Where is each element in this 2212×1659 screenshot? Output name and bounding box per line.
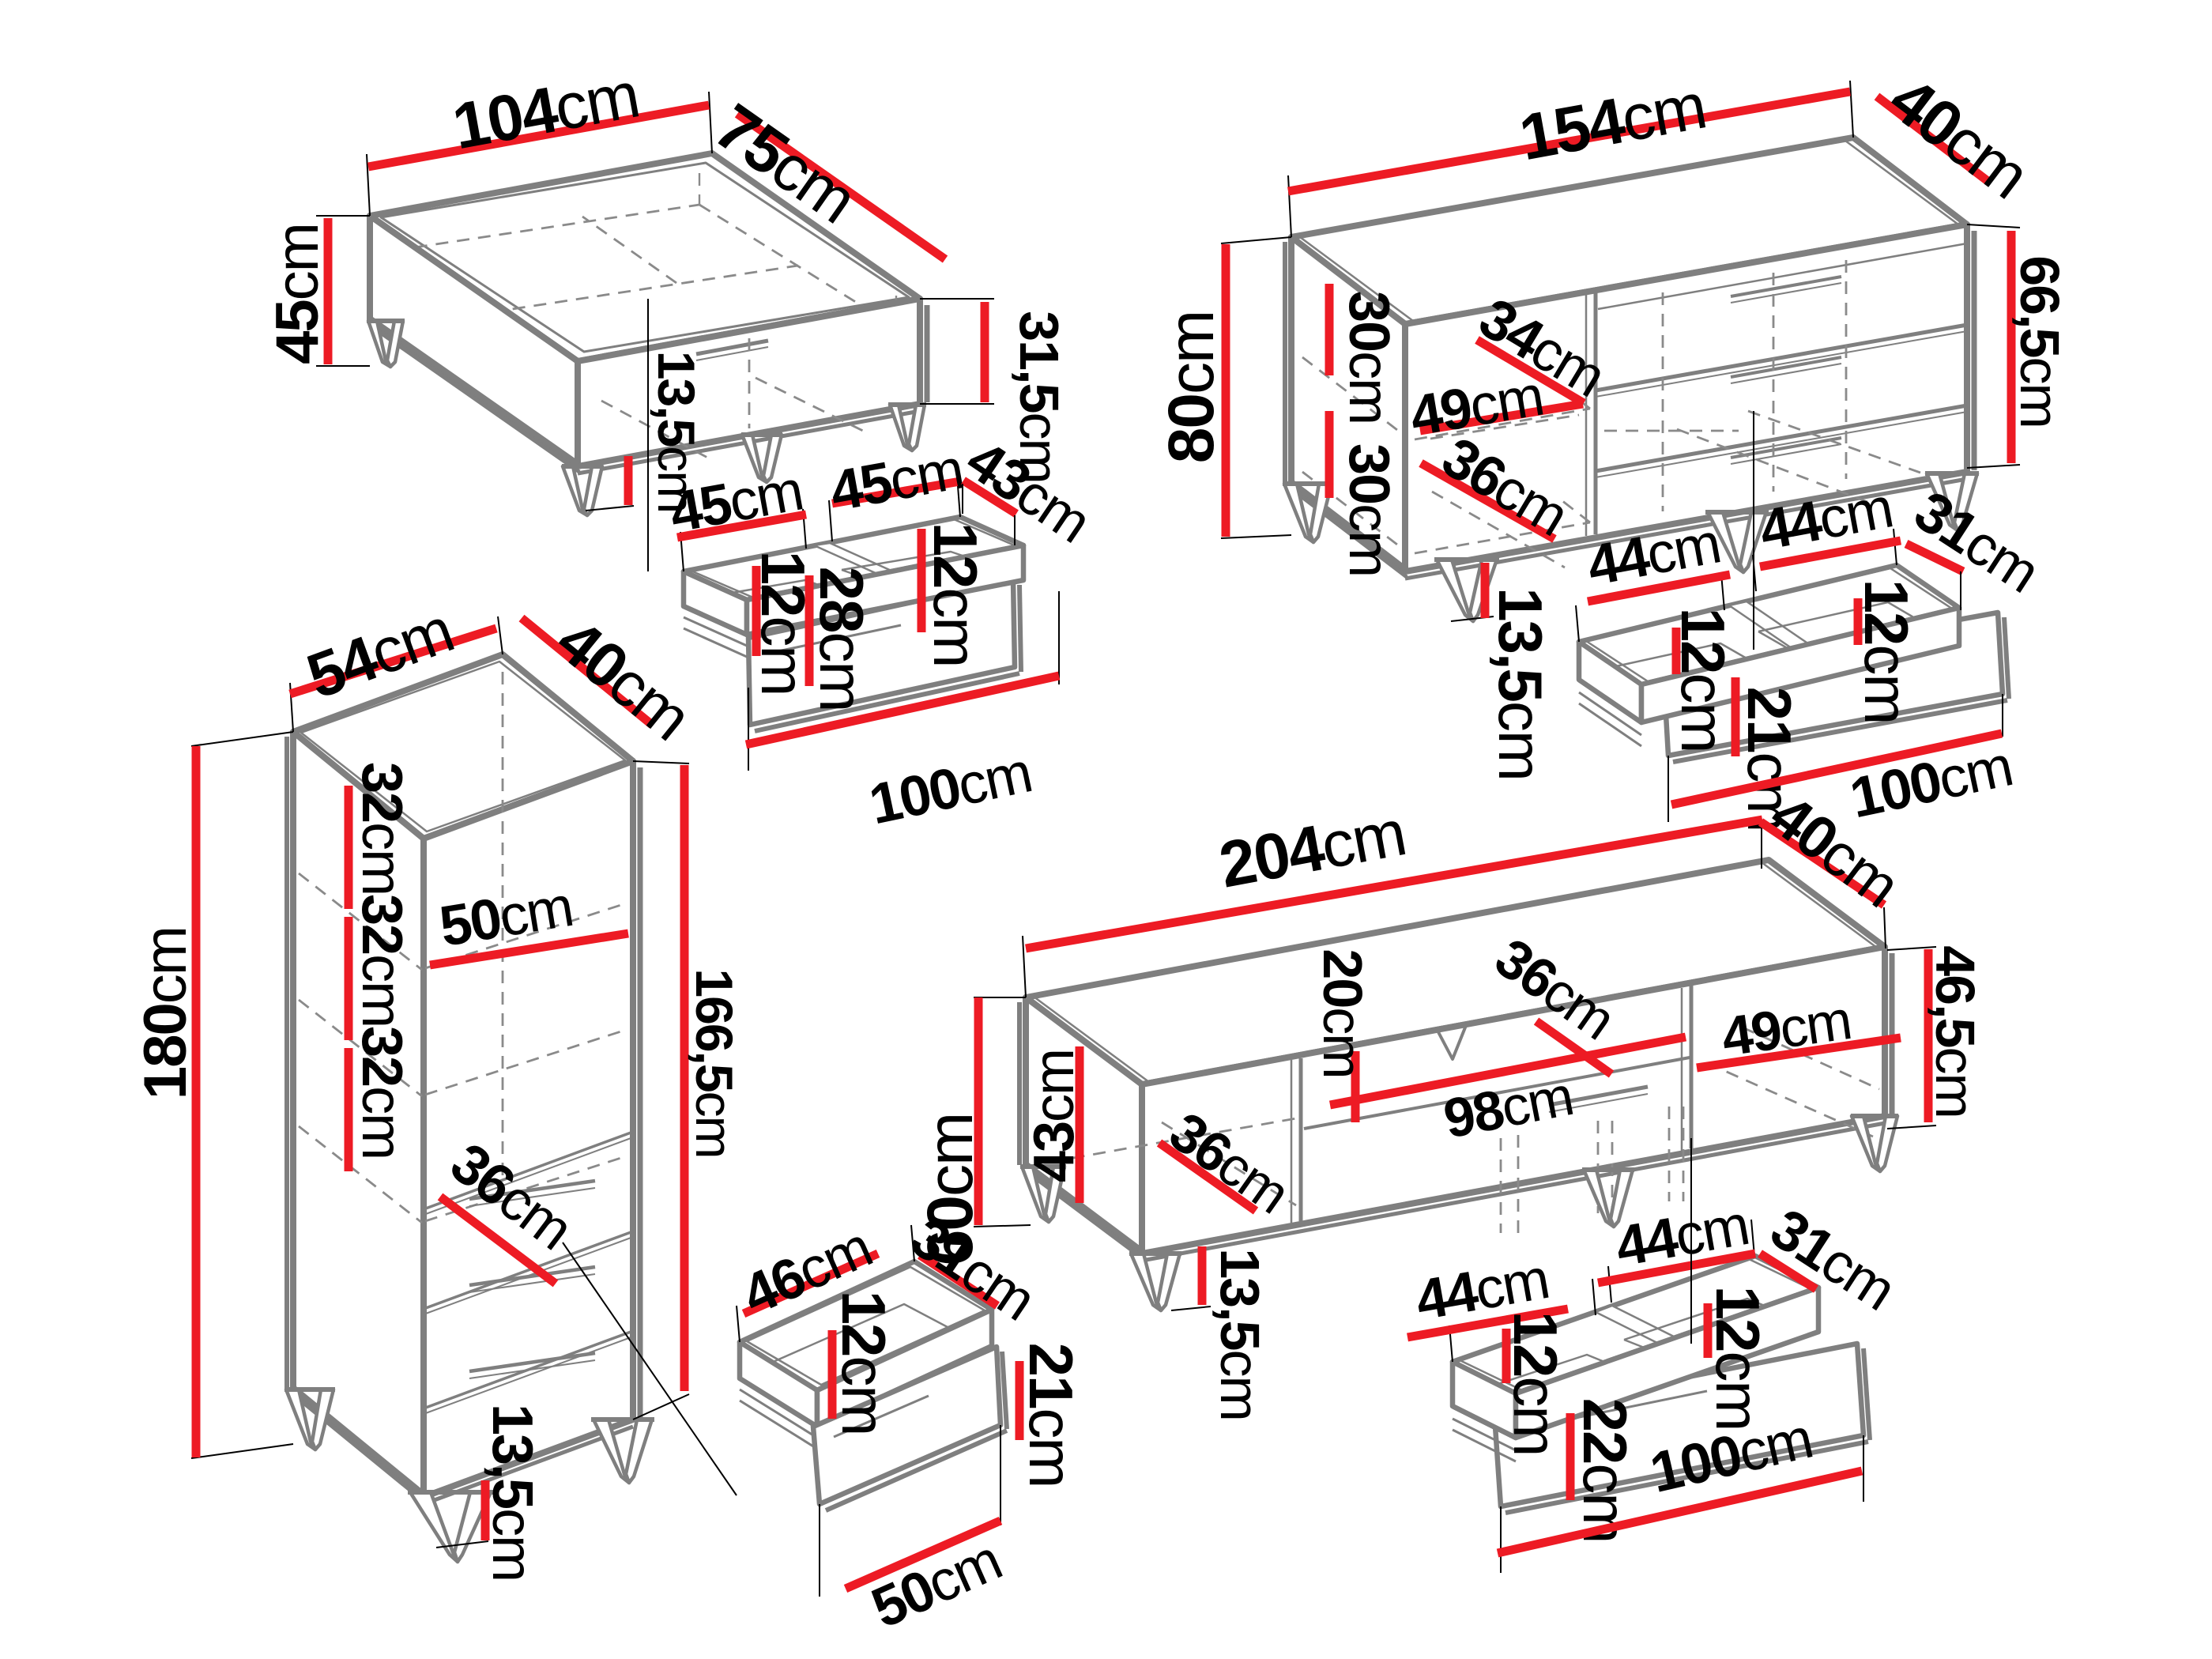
svg-text:12cm: 12cm — [829, 1291, 899, 1435]
svg-text:32cm: 32cm — [350, 762, 413, 895]
svg-text:32cm: 32cm — [350, 1026, 413, 1159]
svg-text:13,5cm: 13,5cm — [480, 1404, 544, 1581]
svg-text:45cm: 45cm — [264, 224, 331, 364]
svg-text:20cm: 20cm — [1312, 948, 1374, 1077]
svg-text:12cm: 12cm — [921, 522, 990, 667]
svg-text:80cm: 80cm — [1155, 311, 1227, 464]
svg-text:12cm: 12cm — [1501, 1311, 1570, 1456]
svg-text:60cm: 60cm — [914, 1114, 986, 1266]
svg-text:12cm: 12cm — [1703, 1286, 1773, 1431]
svg-text:46,5cm: 46,5cm — [1924, 945, 1986, 1118]
svg-text:13,5cm: 13,5cm — [1486, 587, 1555, 780]
svg-text:12cm: 12cm — [1668, 608, 1738, 752]
svg-text:43cm: 43cm — [1023, 1050, 1086, 1182]
svg-text:180cm: 180cm — [132, 927, 199, 1099]
svg-text:13,5cm: 13,5cm — [1209, 1248, 1271, 1420]
svg-text:30cm: 30cm — [1337, 443, 1400, 576]
svg-text:21cm: 21cm — [1016, 1343, 1086, 1487]
svg-text:166,5cm: 166,5cm — [685, 968, 744, 1157]
svg-text:66,5cm: 66,5cm — [2009, 255, 2071, 428]
svg-text:12cm: 12cm — [1852, 579, 1921, 724]
svg-text:30cm: 30cm — [1337, 291, 1400, 424]
svg-text:28cm: 28cm — [807, 567, 876, 711]
svg-text:32cm: 32cm — [350, 894, 413, 1027]
